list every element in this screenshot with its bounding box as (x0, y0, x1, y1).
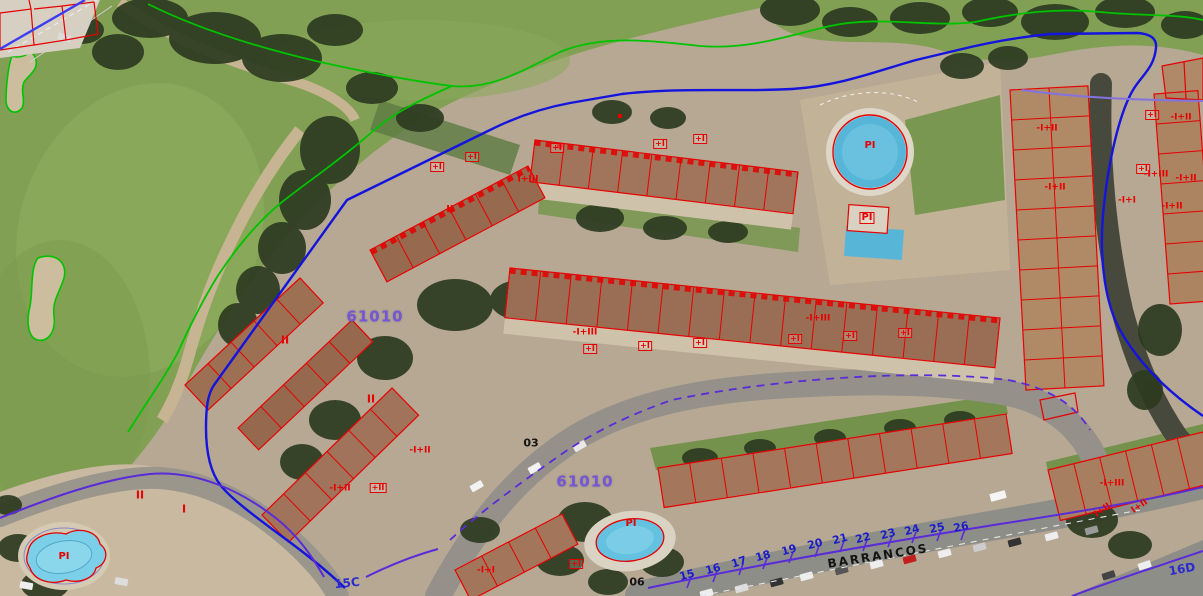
aerial-imagery (0, 0, 1203, 596)
cadastral-map-viewport[interactable]: 6101061010BARRANCOS151617181920212223242… (0, 0, 1203, 596)
